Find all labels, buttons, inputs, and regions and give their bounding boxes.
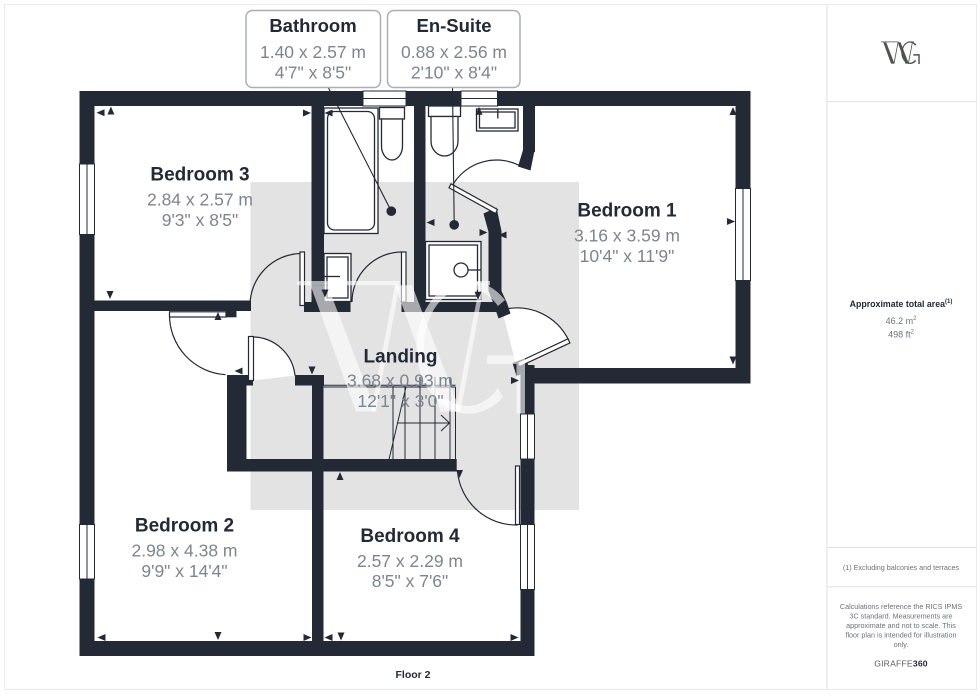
svg-text:2'10" x 8'4": 2'10" x 8'4": [411, 63, 497, 83]
svg-text:Bedroom 1: Bedroom 1: [577, 201, 677, 222]
svg-text:46.2 m2: 46.2 m2: [886, 316, 918, 326]
svg-text:Bathroom: Bathroom: [269, 15, 356, 36]
svg-text:10'4" x 11'9": 10'4" x 11'9": [580, 246, 675, 266]
svg-text:0.88 x 2.56 m: 0.88 x 2.56 m: [401, 42, 507, 62]
svg-text:Approximate total area(1): Approximate total area(1): [850, 299, 953, 309]
svg-text:floor plan is intended for ill: floor plan is intended for illustration: [845, 631, 956, 640]
svg-text:8'5" x 7'6": 8'5" x 7'6": [372, 571, 449, 591]
svg-text:Bedroom 2: Bedroom 2: [135, 516, 234, 537]
svg-text:3.68 x 0.93 m: 3.68 x 0.93 m: [347, 371, 453, 391]
svg-text:Floor 2: Floor 2: [395, 669, 430, 681]
svg-text:En-Suite: En-Suite: [416, 15, 491, 36]
svg-text:3.16 x 3.59 m: 3.16 x 3.59 m: [574, 226, 680, 246]
svg-text:only.: only.: [894, 640, 909, 649]
svg-text:12'1" x 3'0": 12'1" x 3'0": [357, 391, 443, 411]
svg-text:3C standard. Measurements are: 3C standard. Measurements are: [849, 612, 952, 621]
svg-text:2.84 x 2.57 m: 2.84 x 2.57 m: [147, 190, 253, 210]
svg-text:Calculations reference the RIC: Calculations reference the RICS IPMS: [840, 602, 962, 611]
svg-text:approximate and not to scale.: approximate and not to scale. This: [846, 621, 956, 630]
svg-text:4'7" x 8'5": 4'7" x 8'5": [275, 63, 352, 83]
svg-text:2.57 x 2.29 m: 2.57 x 2.29 m: [357, 551, 463, 571]
svg-text:GIRAFFE360: GIRAFFE360: [874, 659, 928, 669]
svg-text:1.40 x 2.57 m: 1.40 x 2.57 m: [260, 42, 366, 62]
svg-text:(1) Excluding balconies and te: (1) Excluding balconies and terraces: [843, 563, 960, 572]
svg-text:2.98 x 4.38 m: 2.98 x 4.38 m: [131, 541, 237, 561]
svg-text:Bedroom 3: Bedroom 3: [150, 165, 249, 186]
svg-text:9'9" x 14'4": 9'9" x 14'4": [141, 561, 227, 581]
svg-text:Landing: Landing: [364, 347, 438, 368]
svg-text:9'3" x 8'5": 9'3" x 8'5": [162, 210, 239, 230]
svg-text:Bedroom 4: Bedroom 4: [360, 526, 460, 547]
